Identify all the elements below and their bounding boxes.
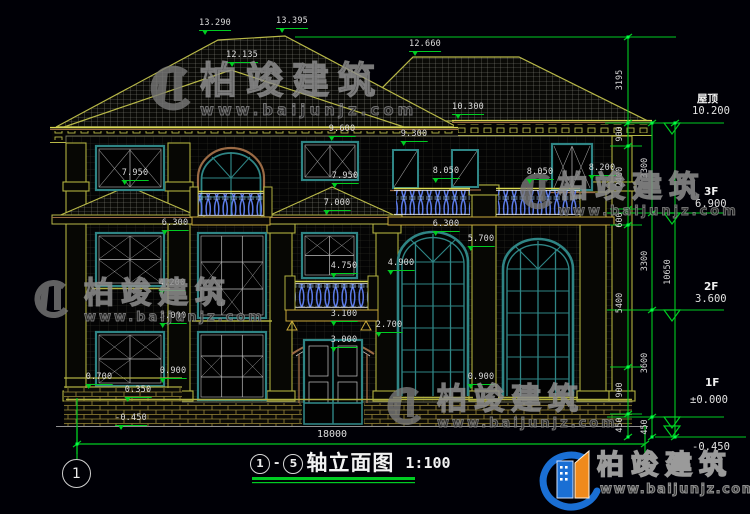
dim-ridge-peak: 13.395 xyxy=(276,17,308,36)
chain-dim: 10650 xyxy=(664,259,673,285)
dim-archwin-top: 6.300 xyxy=(433,220,460,239)
chain-dim: 900 xyxy=(616,126,625,141)
footer-logo-icon xyxy=(543,451,597,507)
drawing-title: 1 - 5 轴立面图 1:100 xyxy=(250,453,451,474)
cad-elevation-screenshot: 13.290 13.395 12.135 12.660 10.300 9.600… xyxy=(0,0,750,514)
footer-logo-url: www.baijunjz.com xyxy=(600,483,750,496)
dim-9600: 9.600 xyxy=(329,125,356,144)
dim-rail-right: 8.050 xyxy=(527,168,554,187)
level-roof-value: 10.200 xyxy=(692,106,730,117)
level-3f-name: 3F xyxy=(704,187,718,198)
dim-sill-left: 0.900 xyxy=(160,367,187,386)
dim-9300: 9.300 xyxy=(401,130,428,149)
level-3f-value: 6.900 xyxy=(695,199,727,210)
chain-dim: 3300 xyxy=(641,158,650,178)
dim-ridge-right: 12.660 xyxy=(409,40,441,59)
dim-door-arch: 3.000 xyxy=(331,336,358,355)
chain-dim: 3195 xyxy=(616,70,625,90)
door-foot xyxy=(304,403,362,424)
level-1f-name: 1F xyxy=(705,378,719,389)
chain-dim: 3600 xyxy=(641,353,650,373)
footer-logo-brand: 柏竣建筑 xyxy=(597,452,733,479)
dim-minus0450-left: -0.450 xyxy=(115,414,147,433)
chain-dim: 450 xyxy=(641,419,650,434)
dim-porchroof-peak: 7.950 xyxy=(332,172,359,191)
level-1f-value: ±0.000 xyxy=(690,395,728,406)
dim-0350: 0.350 xyxy=(125,386,152,405)
dim-balcony-rail: 4.750 xyxy=(331,262,358,281)
dim-0700: 0.700 xyxy=(86,373,113,392)
dim-front-hip-peak: 12.135 xyxy=(226,51,258,70)
chain-dim: 5400 xyxy=(616,293,625,313)
dim-3000-left: 3.000 xyxy=(160,312,187,331)
title-underline-2 xyxy=(252,482,415,483)
dim-2700: 2.700 xyxy=(376,321,403,340)
chain-dim: 450 xyxy=(616,417,625,432)
dim-4900: 4.900 xyxy=(388,259,415,278)
dim-ridge-left: 13.290 xyxy=(199,19,231,38)
dim-balcony-slab: 3.100 xyxy=(331,310,358,329)
title-axis-start: 1 xyxy=(250,454,270,474)
chain-lines xyxy=(628,37,675,437)
dim-bay-eave: 6.300 xyxy=(162,219,189,238)
title-name: 轴立面图 xyxy=(306,453,394,474)
elevation-canvas xyxy=(0,0,750,514)
dim-eave-right: 10.300 xyxy=(452,103,484,122)
dim-sill-right: 0.900 xyxy=(468,373,495,392)
level-2f-value: 3.600 xyxy=(695,294,727,305)
dim-rail-left: 8.050 xyxy=(433,167,460,186)
dim-parapet-post: 8.200 xyxy=(589,164,616,183)
overall-width-dimension: 18000 xyxy=(317,430,347,440)
dim-4200: 4.200 xyxy=(159,279,186,298)
chain-dim: 600 xyxy=(616,212,625,227)
dim-bayroof-left: 7.950 xyxy=(122,169,149,188)
chain-dim: 900 xyxy=(616,382,625,397)
level-2f-name: 2F xyxy=(704,282,718,293)
chain-dim: 3300 xyxy=(641,251,650,271)
axis-bubble-1: 1 xyxy=(62,459,91,488)
title-scale: 1:100 xyxy=(405,456,450,471)
dim-archwin-spring: 5.700 xyxy=(468,235,495,254)
title-axis-end: 5 xyxy=(283,454,303,474)
chain-dim: 2400 xyxy=(616,167,625,187)
dim-porch-eave: 7.000 xyxy=(324,199,351,218)
title-underline xyxy=(252,477,415,480)
bottom-dimension xyxy=(73,426,649,454)
title-dash: - xyxy=(274,456,279,471)
level-roof-name: 屋顶 xyxy=(697,94,718,105)
